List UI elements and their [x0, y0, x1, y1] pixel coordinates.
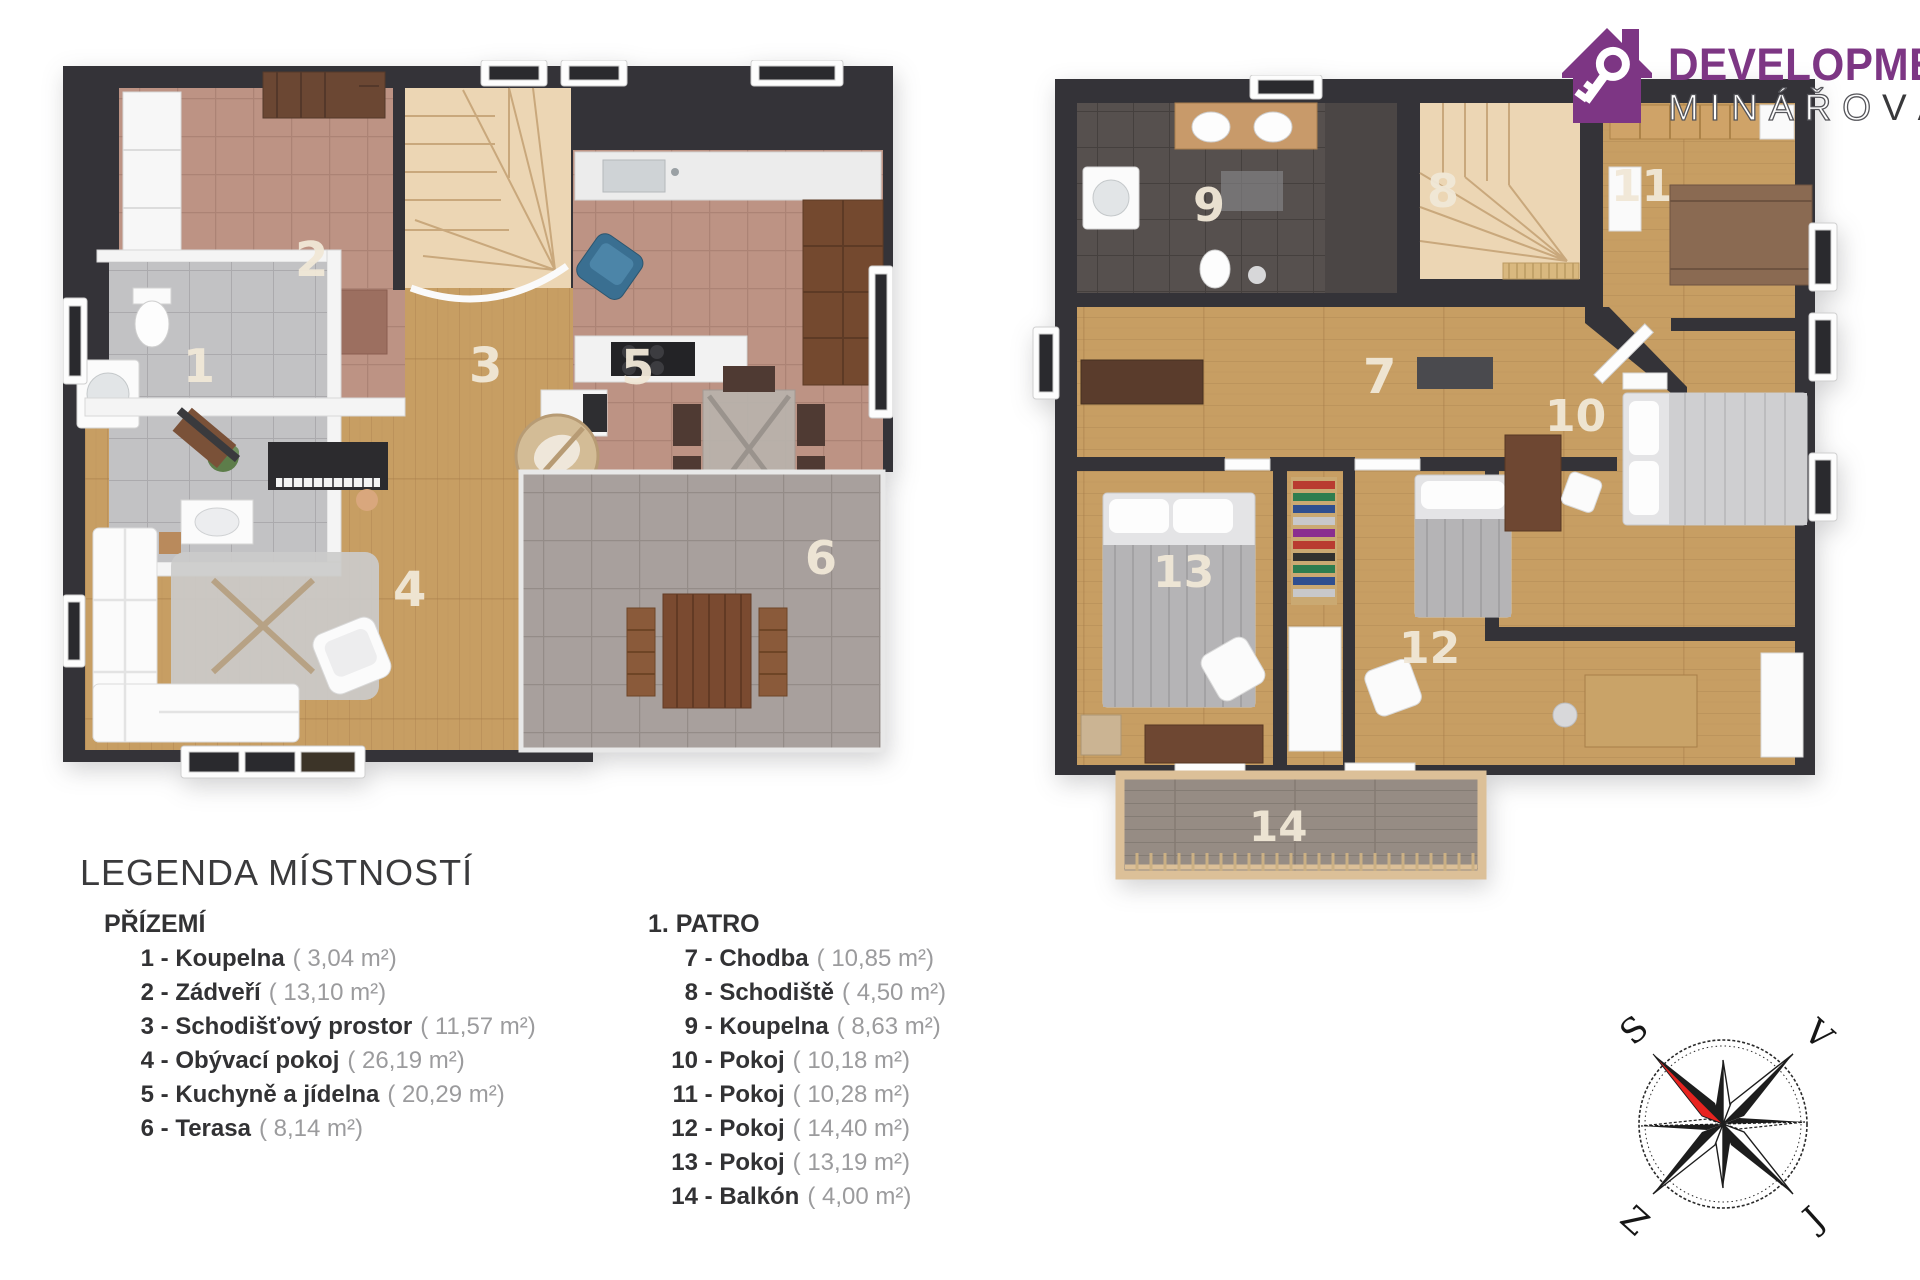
- legend-room-num: 13: [660, 1149, 698, 1177]
- legend-title: LEGENDA MÍSTNOSTÍ: [80, 852, 1180, 894]
- legend-room-name: Pokoj: [719, 1149, 784, 1177]
- legend-room-area: ( 13,19 m²): [793, 1149, 910, 1177]
- legend-room-row: 12 - Pokoj( 14,40 m²): [660, 1115, 946, 1149]
- legend-sep: -: [698, 1081, 719, 1109]
- legend-room-num: 3: [116, 1013, 154, 1041]
- room-label-9: 9: [1193, 178, 1225, 232]
- legend-room-row: 11 - Pokoj( 10,28 m²): [660, 1081, 946, 1115]
- room-label-6: 6: [805, 531, 837, 585]
- legend-room-name: Pokoj: [719, 1047, 784, 1075]
- legend-room-row: 10 - Pokoj( 10,18 m²): [660, 1047, 946, 1081]
- legend-room-area: ( 11,57 m²): [420, 1013, 536, 1041]
- legend-room-name: Balkón: [719, 1183, 799, 1211]
- legend-room-name: Pokoj: [719, 1115, 784, 1143]
- brand-name-bottom: MINÁŘOVÁ: [1668, 86, 1920, 130]
- legend-sep: -: [154, 945, 175, 973]
- legend-sep: -: [698, 1183, 719, 1211]
- legend-room-area: ( 10,85 m²): [817, 945, 934, 973]
- legend: LEGENDA MÍSTNOSTÍ PŘÍZEMÍ 1 - Koupelna( …: [80, 852, 1180, 910]
- legend-room-name: Chodba: [719, 945, 808, 973]
- house-key-icon: [1552, 16, 1662, 134]
- legend-sep: -: [698, 1149, 719, 1177]
- legend-room-area: ( 8,14 m²): [259, 1115, 363, 1143]
- legend-room-row: 7 - Chodba( 10,85 m²): [660, 945, 946, 979]
- legend-room-area: ( 10,28 m²): [793, 1081, 910, 1109]
- legend-room-num: 1: [116, 945, 154, 973]
- legend-room-name: Obývací pokoj: [175, 1047, 339, 1075]
- brand-logo: DEVELOPMENT MINÁŘOVÁ: [1552, 16, 1920, 134]
- legend-sep: -: [154, 1081, 175, 1109]
- legend-sep: -: [698, 1013, 719, 1041]
- legend-room-row: 14 - Balkón( 4,00 m²): [660, 1183, 946, 1217]
- compass-label-south: J: [1793, 1199, 1832, 1240]
- interior-wall: [85, 398, 405, 416]
- legend-sep: -: [154, 1115, 175, 1143]
- legend-room-num: 11: [660, 1081, 698, 1109]
- legend-room-num: 5: [116, 1081, 154, 1109]
- legend-sep: -: [154, 1013, 175, 1041]
- legend-room-num: 6: [116, 1115, 154, 1143]
- legend-room-num: 2: [116, 979, 154, 1007]
- first-floor-plan: 9 8 11 7 10 13 12 14: [1025, 75, 1845, 885]
- legend-room-name: Terasa: [175, 1115, 251, 1143]
- legend-room-num: 14: [660, 1183, 698, 1211]
- legend-sep: -: [698, 1115, 719, 1143]
- legend-room-row: 9 - Koupelna( 8,63 m²): [660, 1013, 946, 1047]
- legend-room-area: ( 4,50 m²): [842, 979, 946, 1007]
- staircase-ground: [393, 84, 571, 299]
- legend-room-area: ( 3,04 m²): [293, 945, 397, 973]
- room-label-4: 4: [393, 562, 426, 618]
- legend-room-num: 8: [660, 979, 698, 1007]
- room-label-11: 11: [1611, 161, 1672, 212]
- room-label-14: 14: [1249, 802, 1307, 851]
- legend-room-area: ( 4,00 m²): [807, 1183, 911, 1211]
- legend-room-num: 10: [660, 1047, 698, 1075]
- legend-room-num: 12: [660, 1115, 698, 1143]
- legend-room-row: 4 - Obývací pokoj( 26,19 m²): [116, 1047, 536, 1081]
- legend-room-area: ( 26,19 m²): [347, 1047, 464, 1075]
- legend-room-area: ( 8,63 m²): [837, 1013, 941, 1041]
- legend-room-row: 13 - Pokoj( 13,19 m²): [660, 1149, 946, 1183]
- legend-sep: -: [698, 979, 719, 1007]
- room-label-5: 5: [621, 340, 654, 396]
- legend-first-column: 1. PATRO 7 - Chodba( 10,85 m²) 8 - Schod…: [648, 910, 946, 1217]
- legend-room-area: ( 13,10 m²): [269, 979, 386, 1007]
- legend-room-area: ( 10,18 m²): [793, 1047, 910, 1075]
- compass-label-west: Z: [1612, 1198, 1656, 1244]
- legend-room-row: 6 - Terasa( 8,14 m²): [116, 1115, 536, 1149]
- brand-name-top: DEVELOPMENT: [1668, 44, 1920, 86]
- legend-room-name: Zádveří: [175, 979, 260, 1007]
- legend-room-row: 1 - Koupelna( 3,04 m²): [116, 945, 536, 979]
- room-label-8: 8: [1427, 164, 1459, 218]
- legend-heading-prizemi: PŘÍZEMÍ: [104, 910, 536, 939]
- floorplan-sheet: { "logo": { "brand_top": "DEVELOPMENT", …: [0, 0, 1920, 1280]
- legend-heading-patro: 1. PATRO: [648, 910, 946, 939]
- room-koupelna-9: [1077, 103, 1397, 293]
- legend-room-row: 2 - Zádveří( 13,10 m²): [116, 979, 536, 1013]
- compass-label-east: V: [1795, 1011, 1838, 1059]
- compass-label-north: S: [1612, 1008, 1656, 1053]
- ground-floor-plan: 1 2 3 4 5 6: [63, 60, 893, 800]
- room-label-2: 2: [295, 232, 328, 288]
- legend-room-num: 9: [660, 1013, 698, 1041]
- brand-name-solid: VÁ: [1882, 87, 1920, 128]
- legend-sep: -: [154, 979, 175, 1007]
- room-label-3: 3: [469, 338, 502, 394]
- room-label-13: 13: [1153, 547, 1214, 598]
- legend-room-row: 3 - Schodišťový prostor( 11,57 m²): [116, 1013, 536, 1047]
- legend-room-row: 8 - Schodiště( 4,50 m²): [660, 979, 946, 1013]
- legend-room-num: 7: [660, 945, 698, 973]
- legend-sep: -: [698, 945, 719, 973]
- legend-sep: -: [698, 1047, 719, 1075]
- closet-rack: [1291, 477, 1337, 605]
- legend-room-num: 4: [116, 1047, 154, 1075]
- legend-room-name: Koupelna: [175, 945, 284, 973]
- room-label-1: 1: [183, 339, 215, 393]
- room-terasa-6: [521, 472, 883, 750]
- legend-room-name: Koupelna: [719, 1013, 828, 1041]
- room-label-12: 12: [1399, 623, 1460, 674]
- legend-ground-column: PŘÍZEMÍ 1 - Koupelna( 3,04 m²) 2 - Zádve…: [104, 910, 536, 1149]
- legend-room-name: Schodišťový prostor: [175, 1013, 412, 1041]
- compass-rose: S V Z J: [1608, 1002, 1838, 1257]
- legend-sep: -: [154, 1047, 175, 1075]
- room-label-10: 10: [1545, 391, 1606, 442]
- brand-name-outline: MINÁŘO: [1668, 87, 1882, 128]
- legend-room-area: ( 14,40 m²): [793, 1115, 910, 1143]
- legend-room-name: Pokoj: [719, 1081, 784, 1109]
- legend-room-name: Schodiště: [719, 979, 834, 1007]
- legend-room-area: ( 20,29 m²): [387, 1081, 504, 1109]
- legend-room-row: 5 - Kuchyně a jídelna( 20,29 m²): [116, 1081, 536, 1115]
- legend-room-name: Kuchyně a jídelna: [175, 1081, 379, 1109]
- room-label-7: 7: [1363, 349, 1396, 405]
